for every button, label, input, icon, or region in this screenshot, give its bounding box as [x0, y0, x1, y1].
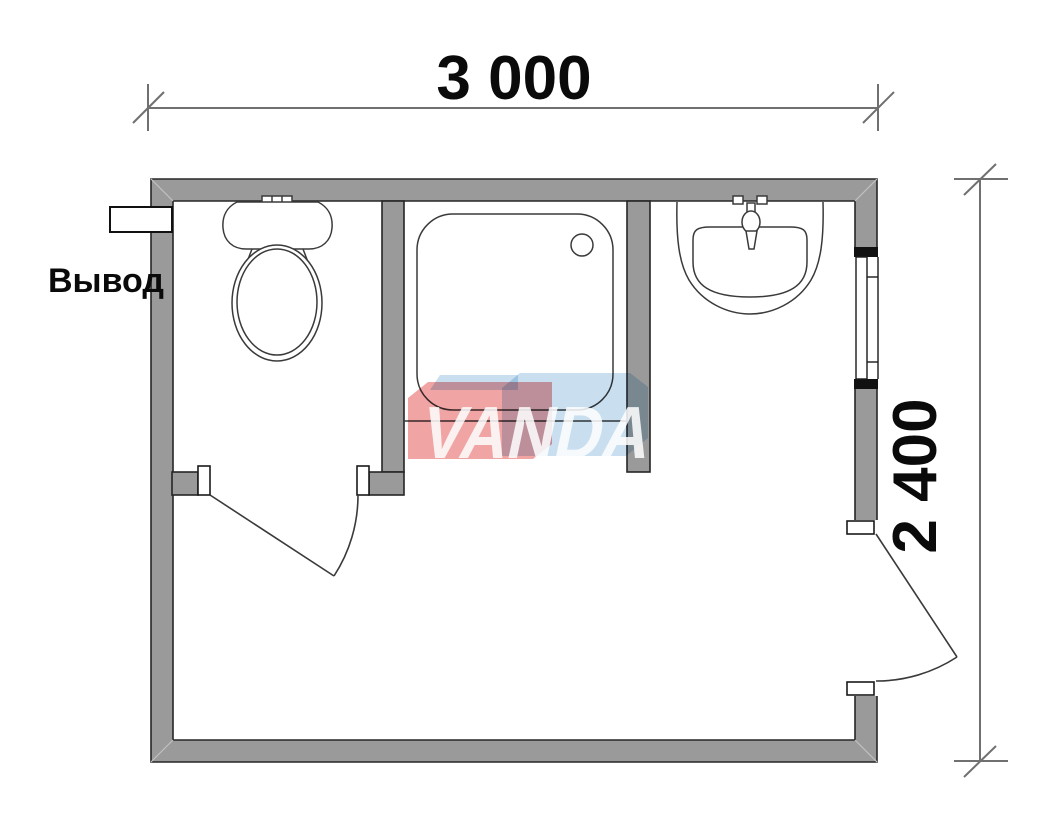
height-dimension-line — [954, 164, 1008, 777]
window-cap-bottom — [854, 379, 878, 389]
sink-mount-right — [757, 196, 767, 204]
window — [854, 247, 878, 389]
window-frame — [856, 257, 867, 379]
toilet — [223, 196, 332, 361]
height-dimension-label: 2 400 — [881, 398, 950, 553]
entry-door-jamb-bottom — [847, 682, 874, 695]
wc-door — [198, 466, 369, 576]
watermark-text: VANDA — [415, 391, 661, 474]
partition-wall-wc-foot — [369, 472, 404, 495]
sink-faucet — [742, 203, 760, 249]
watermark: VANDA — [408, 373, 660, 474]
partition-wall-wc — [382, 201, 404, 472]
wc-door-jamb-left — [198, 466, 210, 495]
outlet-pipe — [110, 207, 172, 232]
width-dimension-label: 3 000 — [436, 44, 591, 113]
floor-plan-canvas: VANDA 3 000 2 400 Вывод — [0, 0, 1054, 818]
entry-door-jamb-top — [847, 521, 874, 534]
sink — [677, 196, 823, 314]
entry-door-swing-arc — [876, 657, 957, 681]
window-cap-top — [854, 247, 878, 257]
toilet-bowl-inner — [237, 249, 317, 355]
floor-plan-drawing: VANDA 3 000 2 400 Вывод — [0, 0, 1054, 818]
wc-door-swing-arc — [334, 495, 358, 576]
wc-door-jamb-right — [357, 466, 369, 495]
sink-mount-left — [733, 196, 743, 204]
outlet-label: Вывод — [48, 262, 164, 300]
toilet-cistern — [223, 202, 332, 249]
shower-drain — [571, 234, 593, 256]
wc-wall-stub — [172, 472, 198, 495]
wc-door-leaf — [210, 495, 334, 576]
